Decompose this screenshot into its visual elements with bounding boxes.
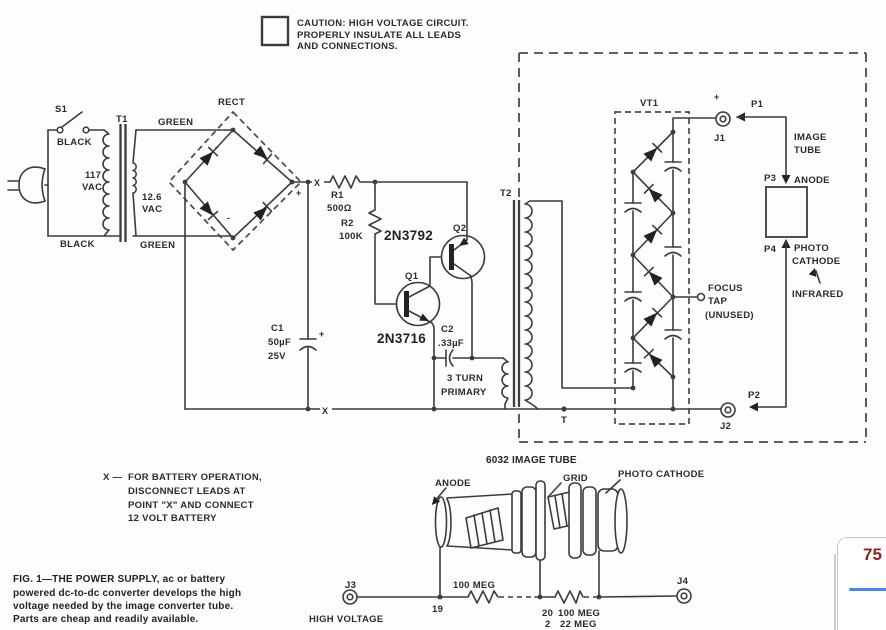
t1-secondary-voltage: 12.6 [142, 192, 162, 203]
c2-label: C2 [441, 324, 454, 335]
t1-primary-voltage: 117 [85, 170, 101, 181]
r2-label: R2 [341, 218, 354, 229]
r2-value: 100K [339, 231, 363, 242]
caution-box: CAUTION: HIGH VOLTAGE CIRCUIT. PROPERLY … [262, 17, 469, 52]
photo-cathode-word-2: CATHODE [792, 256, 840, 267]
resistor3-value: 22 MEG [560, 619, 597, 630]
black-top-label: BLACK [57, 137, 92, 148]
battery-note-line-3: POINT "X" AND CONNECT [128, 500, 254, 511]
vt1-label: VT1 [640, 98, 659, 109]
black-bottom-label: BLACK [60, 239, 95, 250]
caption-line-1: FIG. 1—THE POWER SUPPLY, ac or battery [13, 574, 226, 585]
image-tube-pictorial: 6032 IMAGE TUBE ANODE GRID PHOTO CATHODE [429, 455, 704, 560]
transformer-t2: 3 TURN PRIMARY T2 T [441, 188, 635, 426]
jack-j2: J2 [720, 403, 735, 432]
bridge-plus: + [296, 188, 301, 198]
page-edge-divider [834, 554, 836, 630]
focus-tap-line-1: FOCUS [708, 283, 743, 294]
pin2-label: 2 [545, 619, 551, 630]
schematic-page: CAUTION: HIGH VOLTAGE CIRCUIT. PROPERLY … [0, 0, 886, 630]
multiplier-vt1: VT1 [615, 98, 716, 424]
r1-label: R1 [331, 190, 344, 201]
ac-plug [8, 130, 48, 236]
pictorial-title: 6032 IMAGE TUBE [486, 455, 577, 466]
green-bottom-label: GREEN [140, 240, 175, 251]
pictorial-cathode-label: PHOTO CATHODE [618, 469, 704, 480]
p1-label: P1 [751, 99, 764, 110]
s1-label: S1 [55, 104, 68, 115]
caution-line-1: CAUTION: HIGH VOLTAGE CIRCUIT. [297, 18, 469, 29]
pin19-label: 19 [432, 604, 443, 615]
transistor-q1: Q1 2N3716 [377, 257, 449, 411]
caution-line-3: AND CONNECTIONS. [297, 41, 398, 52]
page-number[interactable]: 75 [863, 545, 882, 565]
q1-label: Q1 [405, 271, 419, 282]
caption-line-4: Parts are cheap and readily available. [13, 614, 198, 625]
caption-line-3: voltage needed by the image converter tu… [13, 601, 233, 612]
focus-tap-terminal: FOCUS TAP (UNUSED) [673, 283, 754, 321]
filter-cap-c1: + C1 50µF 25V [268, 180, 324, 412]
c1-label: C1 [271, 323, 284, 334]
infrared-label: INFRARED [792, 289, 843, 300]
c2-value: .33µF [438, 338, 464, 349]
battery-note: X — FOR BATTERY OPERATION, DISCONNECT LE… [103, 472, 262, 524]
plug-p1-and-image-tube: P1 IMAGE TUBE P3 ANODE P4 PHOTO CATHODE … [736, 99, 843, 412]
j3-label: J3 [345, 580, 356, 591]
t2-primary-label: PRIMARY [441, 387, 487, 398]
transformer-t1: T1 117 VAC 12.6 VAC BLACK [60, 114, 162, 250]
j1-label: J1 [714, 133, 726, 144]
resistor2-value: 100 MEG [558, 608, 600, 619]
c1-voltage: 25V [268, 351, 286, 362]
t1-secondary-voltage-unit: VAC [142, 204, 162, 215]
cap-c2: C2 .33µF [432, 324, 503, 366]
power-switch-s1: S1 BLACK [48, 104, 104, 148]
page-number-card[interactable]: 75 [837, 537, 886, 630]
green-top-label: GREEN [158, 117, 193, 128]
divider-network: J3 HIGH VOLTAGE 19 100 MEG 20 100 MEG 2 … [309, 547, 691, 630]
pictorial-grid-label: GRID [563, 473, 588, 484]
x-point-bottom: X [322, 406, 328, 416]
high-voltage-label: HIGH VOLTAGE [309, 614, 384, 625]
bridge-minus-top: - [215, 142, 218, 152]
c1-value: 50µF [268, 337, 291, 348]
q2-part-number: 2N3792 [384, 228, 433, 243]
p3-label: P3 [764, 173, 776, 184]
pictorial-anode-label: ANODE [435, 478, 471, 489]
caution-line-2: PROPERLY INSULATE ALL LEADS [297, 30, 461, 41]
t1-label: T1 [116, 114, 128, 125]
q2-label: Q2 [453, 223, 466, 234]
t2-primary-turns: 3 TURN [447, 373, 483, 384]
r1-value: 500Ω [327, 203, 352, 214]
image-tube-word-1: IMAGE [794, 132, 827, 143]
battery-note-line-2: DISCONNECT LEADS AT [128, 486, 246, 497]
photo-cathode-word-1: PHOTO [794, 243, 829, 254]
battery-note-line-4: 12 VOLT BATTERY [128, 513, 217, 524]
p2-label: P2 [748, 390, 760, 401]
focus-tap-line-2: TAP [708, 296, 728, 307]
x-point-top: X [314, 178, 320, 188]
rect-label: RECT [218, 97, 245, 108]
image-tube-word-2: TUBE [794, 145, 821, 156]
page-card-accent-rule [849, 588, 886, 591]
figure-caption: FIG. 1—THE POWER SUPPLY, ac or battery p… [13, 574, 241, 625]
focus-tap-line-3: (UNUSED) [705, 310, 754, 321]
t1-primary-voltage-unit: VAC [82, 182, 102, 193]
resistor1-value: 100 MEG [453, 580, 495, 591]
battery-note-line-1: FOR BATTERY OPERATION, [128, 472, 262, 483]
t2-tap-label: T [561, 415, 567, 426]
t2-label: T2 [500, 188, 512, 199]
c1-plus: + [319, 329, 324, 339]
j1-polarity: + [714, 92, 719, 102]
battery-note-prefix: X — [103, 472, 123, 483]
anode-label: ANODE [794, 175, 830, 186]
p4-label: P4 [764, 244, 777, 255]
j4-label: J4 [677, 576, 689, 587]
j2-label: J2 [720, 421, 731, 432]
caption-line-2: powered dc-to-dc converter develops the … [13, 588, 241, 599]
schematic-drawing: CAUTION: HIGH VOLTAGE CIRCUIT. PROPERLY … [0, 0, 886, 630]
q1-part-number: 2N3716 [377, 331, 426, 346]
bridge-minus-bottom: - [227, 213, 230, 223]
pin20-label: 20 [542, 608, 553, 619]
jack-j1: + J1 [714, 92, 730, 144]
